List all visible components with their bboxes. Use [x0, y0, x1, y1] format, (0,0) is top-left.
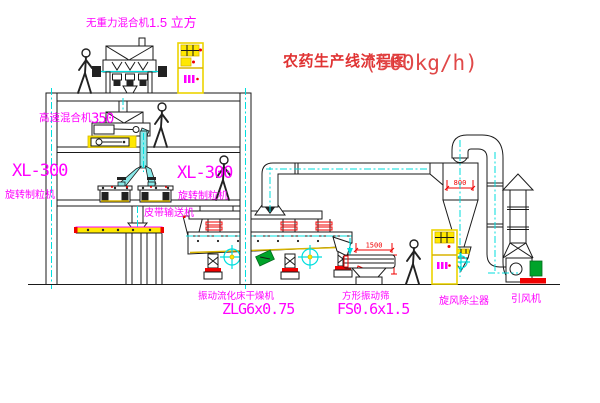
control-cabinet-bottom	[432, 230, 457, 284]
label-cyclone: 旋风除尘器	[439, 294, 489, 307]
cad-flow-diagram: 800 1500	[0, 0, 600, 403]
label-fan: 引风机	[511, 292, 541, 305]
label-granulator-left-model: XL-300	[12, 161, 68, 181]
rotary-granulator-right	[138, 177, 173, 202]
person-figure	[78, 49, 92, 93]
label-belt-conveyor: 皮带输送机	[144, 206, 194, 219]
person-figure	[406, 240, 420, 284]
fluid-bed-dryer	[183, 206, 352, 279]
label-granulator-left-name: 旋转制粒机	[5, 188, 55, 201]
label-top-mixer: 无重力混合机	[86, 16, 149, 29]
green-tag-icon	[256, 250, 275, 266]
dryer-exhaust-duct	[255, 163, 453, 215]
diagram-title: 农药生产线流程图 (500kg/h)	[282, 51, 478, 75]
title-capacity: (500kg/h)	[364, 51, 478, 75]
label-sieve-model: FS0.6x1.5	[337, 300, 409, 318]
control-cabinet-top	[178, 43, 203, 93]
label-granulator-right-name: 旋转制粒机	[178, 189, 228, 202]
label-top-mixer-size: 1.5 立方	[149, 15, 197, 30]
label-mid-mixer: 高速混合机	[39, 111, 92, 124]
label-mid-mixer-size: 350	[91, 111, 114, 127]
label-dryer-model: ZLG6x0.75	[222, 300, 294, 318]
label-granulator-right-model: XL-300	[177, 163, 233, 183]
person-figure	[154, 103, 168, 147]
zero-gravity-mixer	[92, 38, 167, 93]
fan-motor	[530, 261, 542, 276]
dimension-1500: 1500	[366, 242, 383, 250]
